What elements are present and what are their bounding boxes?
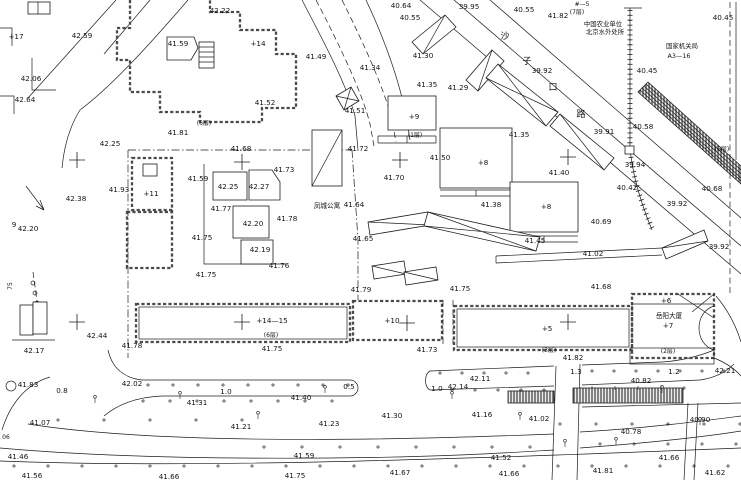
elevation-label: 42.11	[470, 374, 491, 383]
street-tick-mark	[296, 383, 300, 387]
lamp-post-head	[94, 395, 97, 398]
street-tick-mark	[276, 399, 280, 403]
street-tick-mark	[338, 445, 342, 449]
elevation-label: 41.83	[18, 380, 39, 389]
elevation-label: 41.81	[168, 128, 189, 137]
street-tick-mark	[700, 442, 704, 446]
elevation-label: 41.21	[231, 422, 252, 431]
elevation-label: 42.25	[218, 182, 239, 191]
road-edge	[62, 0, 188, 168]
building-number-label: ∔14	[250, 39, 266, 48]
floor-count-label: (6层)	[264, 332, 279, 339]
street-tick-mark	[504, 371, 508, 375]
street-tick-mark	[692, 464, 696, 468]
labels-layer: 42.22∔1742.5941.59∔1440.6440.5539.9540.5…	[2, 1, 735, 480]
grid-cross	[69, 314, 85, 330]
pole	[33, 291, 37, 295]
grid-cross	[234, 154, 250, 170]
elevation-label: 41.73	[417, 345, 438, 354]
elevation-label: 41.78	[122, 341, 143, 350]
street-tick-mark	[522, 464, 526, 468]
elevation-label: 40.64	[391, 1, 412, 10]
street-tick-mark	[558, 422, 562, 426]
org-name-label: 中国农业单位	[584, 19, 623, 28]
elevation-label: 41.35	[509, 130, 530, 139]
elevation-label: 41.79	[351, 285, 372, 294]
lamp-post-head	[519, 412, 522, 415]
street-tick-mark	[80, 464, 84, 468]
elevation-label: 40.55	[514, 5, 535, 14]
elevation-label: 41.68	[231, 144, 252, 153]
annotation-label: 9	[12, 220, 17, 229]
site-plan-canvas: 42.22∔1742.5941.59∔1440.6440.5539.9540.5…	[0, 0, 741, 480]
elevation-label: 41.40	[549, 168, 570, 177]
elevation-label: 40.90	[690, 415, 711, 424]
org-name-label: A3—16	[668, 52, 691, 60]
elevation-label: 42.19	[250, 245, 271, 254]
dimension-label: 1.0	[220, 387, 232, 396]
elevation-label: 40.45	[713, 13, 734, 22]
street-name-char: 路	[576, 108, 585, 120]
elevation-label: 42.59	[72, 31, 93, 40]
floor-count-label: (1层)	[408, 132, 423, 139]
street-tick-mark	[249, 399, 253, 403]
grid-cross	[69, 152, 85, 168]
street-tick-mark	[632, 442, 636, 446]
elevation-label: 41.02	[583, 249, 604, 258]
elevation-label: 41.30	[382, 411, 403, 420]
elevation-label: 41.78	[277, 214, 298, 223]
lamp-post-head	[564, 439, 567, 442]
street-tick-mark	[321, 383, 325, 387]
lamp-post-head	[257, 411, 260, 414]
elevation-label: 42.20	[18, 224, 39, 233]
street-tick-mark	[182, 464, 186, 468]
street-tick-mark	[318, 464, 322, 468]
elevation-label: 41.59	[188, 174, 209, 183]
elevation-label: 42.38	[66, 194, 87, 203]
street-tick-mark	[271, 383, 275, 387]
road-centerline	[316, 0, 374, 146]
street-tick-mark	[454, 464, 458, 468]
building-outline-b11s	[127, 212, 172, 268]
elevation-label: 41.76	[269, 261, 290, 270]
dimension-label: 1.0	[431, 384, 443, 393]
elevation-label: 39.91	[594, 127, 615, 136]
elevation-label: 41.31	[187, 398, 208, 407]
elevation-label: 41.68	[591, 282, 612, 291]
elevation-label: 41.23	[319, 419, 340, 428]
building-b8a	[440, 128, 512, 188]
street-tick-mark	[300, 445, 304, 449]
floor-count-label: (5层)	[715, 146, 730, 153]
street-tick-mark	[148, 464, 152, 468]
grid-cross	[560, 314, 576, 330]
street-tick-mark	[330, 399, 334, 403]
elevation-label: 41.34	[360, 63, 381, 72]
long-slab	[496, 248, 662, 263]
elevation-label: 40.45	[637, 66, 658, 75]
hatched-bar	[573, 388, 683, 403]
grid-cross	[399, 315, 415, 331]
street-tick-mark	[594, 422, 598, 426]
elevation-label: 40.42	[617, 183, 638, 192]
street-tick-mark	[496, 388, 500, 392]
building-number-label: ∔17	[8, 32, 23, 41]
elevation-label: 40.78	[621, 427, 642, 436]
elevation-label: 41.52	[255, 98, 276, 107]
street-name-char: 子	[522, 56, 531, 67]
elevation-label: 41.75	[192, 233, 213, 242]
dimension-label: 1.3	[570, 367, 581, 376]
elevation-label: 41.29	[448, 83, 469, 92]
elevation-label: 41.81	[593, 466, 614, 475]
street-tick-mark	[148, 418, 152, 422]
dimension-label: 1.2	[668, 367, 679, 376]
elevation-label: 40.69	[591, 217, 612, 226]
street-tick-mark	[630, 422, 634, 426]
elevation-label: 41.64	[344, 200, 365, 209]
elevation-label: 41.75	[262, 344, 283, 353]
street-tick-mark	[700, 369, 704, 373]
street-tick-mark	[452, 445, 456, 449]
elevation-label: 41.72	[348, 144, 369, 153]
road-edge	[552, 364, 580, 480]
buildings-layer	[117, 0, 741, 403]
street-tick-mark	[528, 445, 532, 449]
annotation-label: 75	[7, 282, 14, 290]
elevation-label: 41.62	[705, 468, 726, 477]
elevation-label: 41.67	[390, 468, 411, 477]
elevation-label: 42.06	[21, 74, 42, 83]
elevation-label: 41.07	[30, 418, 51, 427]
elevation-label: 42.17	[24, 346, 45, 355]
street-tick-mark	[168, 399, 172, 403]
building-number-label: ∔8	[541, 202, 552, 211]
elevation-label: 41.75	[196, 270, 217, 279]
street-tick-mark	[414, 445, 418, 449]
elevation-label: 42.64	[15, 95, 36, 104]
street-tick-mark	[262, 445, 266, 449]
street-tick-mark	[56, 418, 60, 422]
street-name-char: 沙	[500, 31, 509, 42]
elevation-label: 40.58	[633, 122, 654, 131]
lamp-post-head	[615, 437, 618, 440]
street-tick-mark	[250, 464, 254, 468]
street-tick-mark	[114, 464, 118, 468]
elevation-label: 41.93	[109, 185, 130, 194]
street-tick-mark	[12, 464, 16, 468]
elevation-label: 39.95	[459, 2, 480, 11]
elevation-label: 42.14	[448, 382, 469, 391]
street-tick-mark	[438, 371, 442, 375]
elevation-label: 41.77	[211, 204, 232, 213]
street-tick-mark	[624, 464, 628, 468]
stair-structure	[199, 42, 214, 68]
elevation-label: 41.66	[499, 469, 520, 478]
elevation-label: 42.25	[100, 139, 121, 148]
street-tick-mark	[102, 418, 106, 422]
building-name-label: 凤城公寓	[314, 201, 341, 210]
elevation-label: 41.02	[529, 414, 550, 423]
elevation-label: 41.38	[481, 200, 502, 209]
elevation-label: 41.73	[274, 165, 295, 174]
curb	[580, 416, 741, 432]
grid-cross	[560, 149, 576, 165]
annotation-label: #—5	[575, 1, 590, 8]
floor-count-label: (7层)	[570, 9, 585, 16]
street-tick-mark	[352, 464, 356, 468]
street-tick-mark	[490, 445, 494, 449]
elevation-label: 40.82	[631, 376, 652, 385]
elevation-label: 42.02	[122, 379, 143, 388]
elevation-label: 41.16	[472, 410, 493, 419]
elevation-label: 42.27	[249, 182, 270, 191]
building-number-label: ∔11	[143, 189, 158, 198]
small-shed	[20, 305, 33, 335]
elevation-label: 41.75	[285, 471, 306, 480]
street-tick-mark	[658, 464, 662, 468]
elevation-label: 41.70	[384, 173, 405, 182]
elevation-label: 41.35	[417, 80, 438, 89]
elevation-label: 41.51	[345, 106, 366, 115]
manhole	[6, 381, 16, 391]
street-tick-mark	[666, 422, 670, 426]
dimension-label: 0.5	[343, 382, 354, 391]
dimension-label: 0.8	[56, 386, 68, 395]
elevation-label: 39.92	[709, 242, 730, 251]
lamp-post-head	[179, 391, 182, 394]
street-tick-mark	[460, 371, 464, 375]
street-tick-mark	[612, 369, 616, 373]
building-b14-15	[136, 304, 350, 342]
elevation-label: 41.66	[159, 472, 180, 480]
street-tick-mark	[666, 442, 670, 446]
curb	[716, 296, 741, 342]
elevation-label: 41.82	[563, 353, 584, 362]
striped-building	[638, 82, 741, 184]
elevation-label: 41.45	[525, 236, 546, 245]
street-tick-mark	[526, 371, 530, 375]
floor-count-label: (3层)	[542, 347, 557, 354]
building-number-label: ∔8	[478, 158, 489, 167]
elevation-label: 41.46	[8, 452, 29, 461]
road-edge	[302, 0, 358, 150]
cad-site-plan: 42.22∔1742.5941.59∔1440.6440.5539.9540.5…	[0, 0, 741, 480]
annotation-label: 06	[2, 434, 10, 441]
small-structure	[143, 164, 157, 176]
street-tick-mark	[222, 399, 226, 403]
street-tick-mark	[420, 464, 424, 468]
elevation-label: 42.44	[87, 331, 108, 340]
grid-cross	[234, 314, 250, 330]
small-shed	[33, 302, 47, 334]
street-tick-mark	[590, 369, 594, 373]
street-tick-mark	[376, 445, 380, 449]
road-edge	[28, 0, 116, 98]
street-tick-mark	[726, 464, 730, 468]
fence-gate	[625, 146, 634, 154]
street-tick-mark	[246, 383, 250, 387]
elevation-label: 41.50	[430, 153, 451, 162]
elevation-label: 41.40	[291, 393, 312, 402]
lamp-post-head	[324, 385, 327, 388]
street-tick-mark	[216, 464, 220, 468]
street-tick-mark	[194, 418, 198, 422]
elevation-label: 41.49	[306, 52, 327, 61]
elevation-label: 40.68	[702, 184, 723, 193]
floor-count-label: (6层)	[197, 120, 212, 127]
elevation-label: 42.21	[715, 366, 736, 375]
elevation-label: 42.20	[243, 219, 264, 228]
wall-band	[440, 190, 512, 196]
road-edge	[104, 0, 150, 54]
elevation-label: 41.56	[22, 471, 43, 480]
elevation-label: 42.22	[210, 6, 231, 15]
street-name-char: 口	[548, 83, 557, 93]
street-tick-mark	[556, 464, 560, 468]
building-number-label: ∔5	[542, 324, 553, 333]
street-tick-mark	[284, 464, 288, 468]
curb	[0, 448, 741, 464]
elevation-label: 41.66	[659, 453, 680, 462]
hatched-bar	[508, 391, 554, 403]
building-number-label: ∔6	[661, 296, 672, 305]
street-tick-mark	[196, 383, 200, 387]
elevation-label: 41.59	[294, 451, 315, 460]
curb	[582, 403, 741, 407]
street-tick-mark	[734, 442, 738, 446]
street-tick-mark	[141, 399, 145, 403]
fence-line	[624, 8, 652, 230]
elevation-label: 41.30	[413, 51, 434, 60]
building-number-label: ∔14—15	[256, 316, 288, 325]
small-shed	[28, 2, 50, 14]
grid-cross	[392, 152, 408, 168]
elevation-label: 39.92	[667, 199, 688, 208]
building-b14-15-inner	[139, 307, 347, 339]
elevation-label: 41.59	[168, 39, 189, 48]
building-number-label: ∔7	[663, 321, 674, 330]
elevation-label: 41.52	[491, 453, 512, 462]
street-tick-mark	[598, 442, 602, 446]
arrow-mark	[26, 186, 44, 210]
elevation-label: 39.92	[532, 66, 553, 75]
elevation-label: 41.65	[353, 234, 374, 243]
elevation-label: 40.55	[400, 13, 421, 22]
street-tick-mark	[46, 464, 50, 468]
street-tick-mark	[488, 464, 492, 468]
building-number-label: ∔10	[384, 316, 400, 325]
curb	[28, 424, 554, 439]
street-tick-mark	[656, 369, 660, 373]
org-name-label: 国家机关局	[666, 41, 698, 50]
elevation-label: 41.75	[450, 284, 471, 293]
org-name-label: 北京水外处所	[586, 27, 625, 36]
building-number-label: ∔9	[409, 112, 420, 121]
building-name-label: 岳阳大厦	[656, 311, 683, 320]
elevation-label: 39.94	[625, 160, 646, 169]
street-tick-mark	[171, 383, 175, 387]
floor-count-label: (2层)	[661, 348, 676, 355]
road-edge	[454, 0, 741, 246]
street-tick-mark	[146, 383, 150, 387]
elevation-label: 41.82	[548, 11, 569, 20]
street-tick-mark	[634, 369, 638, 373]
curb	[426, 371, 431, 390]
gate-band	[443, 300, 453, 344]
